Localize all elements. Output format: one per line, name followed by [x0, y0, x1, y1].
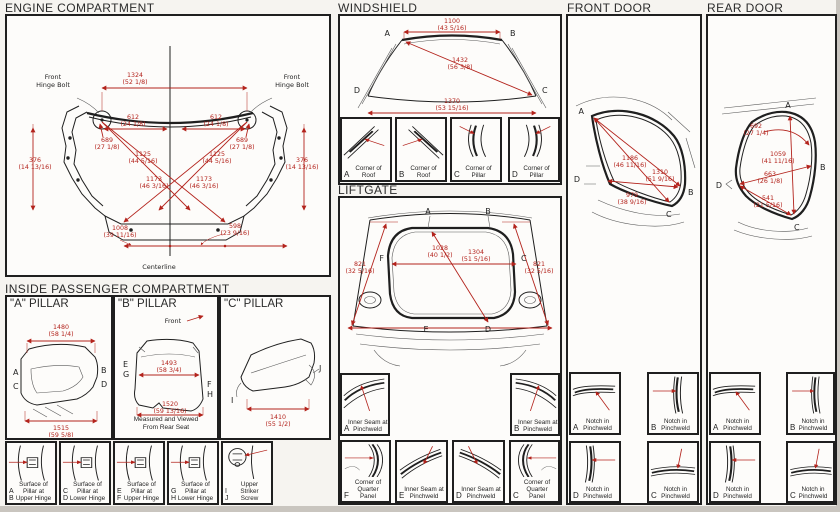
liftgate-detail-panel-d: D Inner Seam at Pinchweld [452, 440, 505, 503]
a-pillar-line-art [21, 344, 98, 417]
dim-text: 663 [764, 171, 776, 178]
dim-text: 979 [626, 192, 638, 199]
front-hinge-bolt-label: Hinge Bolt [275, 81, 309, 89]
point-label: C [542, 86, 548, 95]
body-dimensions-sheet: ENGINE COMPARTMENT WINDSHIELD FRONT DOOR… [0, 0, 840, 512]
dim-text: 1173 [146, 176, 162, 183]
front-door-detail-panel-b: B Notch in Pinchweld [647, 372, 699, 435]
panel-caption: Upper Striker Screw [229, 481, 270, 502]
point-label: D [716, 181, 722, 190]
rear-door-detail-panel-d: D Notch in Pinchweld [709, 441, 761, 503]
point-label: B [510, 29, 516, 38]
windshield-detail-panel-d: D Corner of Pillar [508, 117, 560, 182]
dim-text: 612 [127, 114, 139, 121]
b-pillar-drawing: Front E F G H 1493 (58 3/4) 1520 (59 13/… [115, 313, 217, 417]
notch-art [711, 444, 759, 484]
dim-text: 1186 [622, 155, 638, 162]
notch-art [571, 444, 619, 484]
point-label: A [425, 207, 431, 216]
dim-text: (43 5/16) [437, 25, 466, 32]
striker-screw-art [223, 444, 271, 482]
point-label: D [485, 325, 491, 334]
liftgate-detail-panel-a: A Inner Seam at Pinchweld [340, 373, 390, 436]
rear-door-detail-panel-c: C Notch in Pinchweld [786, 441, 835, 503]
dim-text: (44 5/16) [128, 158, 157, 165]
dim-text: (53 15/16) [435, 105, 468, 112]
windshield-drawing: A B C D 1100 (43 5/16) 1432 (56 3/8) 137… [340, 16, 560, 118]
a-pillar-dimension-lines [25, 341, 97, 421]
dim-text: (56 3/8) [447, 64, 472, 71]
dim-text: (32 5/16) [345, 268, 374, 275]
point-label: C [794, 223, 800, 232]
point-label: B [820, 163, 826, 172]
dim-text: (44 5/16) [202, 158, 231, 165]
rear-door-detail-panel-b: B Notch in Pinchweld [786, 372, 835, 435]
corner-of-pillar-art [452, 120, 500, 160]
interior-detail-panel-gh: G H Surface of Pillar at Lower Hinge [167, 441, 219, 505]
point-label: E [423, 325, 428, 334]
dim-text: (59 13/16) [153, 408, 186, 415]
dim-text: 1370 [444, 98, 460, 105]
a-pillar-title: "A" PILLAR [10, 298, 69, 310]
panel-caption: Notch in Pinchweld [577, 418, 618, 432]
dim-text: 1324 [127, 72, 143, 79]
front-hinge-bolt-label: Hinge Bolt [36, 81, 70, 89]
notch-art [788, 444, 833, 484]
engine-dimension-lines [33, 88, 304, 247]
panel-caption: Corner of Quarter Panel [348, 479, 388, 500]
engine-compartment-box: 1324 (52 1/8) 612 (24 1/8) 612 (24 1/8) … [5, 14, 331, 277]
windshield-detail-panel-b: B Corner of Roof [395, 117, 447, 182]
rear-door-detail-panel-a: A Notch in Pinchweld [709, 372, 761, 435]
inner-seam-art [512, 376, 558, 414]
notch-art [571, 375, 619, 415]
panel-caption: Notch in Pinchweld [655, 486, 696, 500]
dim-text: (24 1/8) [203, 121, 228, 128]
dim-text: (59 5/8) [48, 432, 73, 437]
dim-text: 1493 [161, 360, 177, 367]
panel-caption: Corner of Pillar [516, 165, 557, 179]
dim-text: (40 1/2) [427, 252, 452, 259]
liftgate-detail-panel-e: E Inner Seam at Pinchweld [395, 440, 448, 503]
dim-text: 541 [762, 195, 774, 202]
c-pillar-dimension-lines [247, 399, 309, 409]
dim-text: 1125 [135, 151, 151, 158]
c-pillar-title: "C" PILLAR [224, 298, 283, 310]
dim-text: 689 [236, 137, 248, 144]
front-hinge-bolt-label: Front [284, 73, 301, 81]
notch-art [649, 375, 697, 415]
point-label: A [385, 29, 391, 38]
a-pillar-box: "A" PILLAR A B C D 1480 (58 1/4) 1515 (5… [5, 295, 113, 440]
b-pillar-note: Measured and Viewed From Rear Seat [115, 416, 217, 432]
interior-detail-panel-cd: C D Surface of Pillar at Lower Hinge [59, 441, 111, 505]
point-label: E [123, 360, 128, 369]
inner-seam-art [455, 443, 503, 483]
dim-text: (38 9/16) [617, 199, 646, 206]
liftgate-detail-panel-b: B Inner Seam at Pinchweld [510, 373, 560, 436]
dim-text: (27 1/8) [94, 144, 119, 151]
inner-seam-art [342, 376, 388, 414]
panel-caption: Inner Seam at Pinchweld [348, 419, 387, 433]
front-hinge-bolt-label: Front [45, 73, 62, 81]
dim-text: (26 1/8) [757, 178, 782, 185]
panel-caption: Notch in Pinchweld [794, 486, 832, 500]
dim-text: 1125 [209, 151, 225, 158]
dim-text: 1173 [196, 176, 212, 183]
dim-text: (41 11/16) [761, 158, 794, 165]
b-pillar-title: "B" PILLAR [118, 298, 177, 310]
point-label: I [231, 396, 233, 405]
hinge-surface-art [7, 444, 55, 482]
liftgate-drawing: A B C D E F 821 (32 5/16) 1028 (40 1/2) … [340, 198, 560, 375]
windshield-detail-panel-c: C Corner of Pillar [450, 117, 502, 182]
corner-of-pillar-art [510, 120, 558, 160]
dim-text: (24 1/8) [120, 121, 145, 128]
liftgate-dimension-lines [348, 222, 552, 328]
dim-text: 689 [101, 137, 113, 144]
panel-point-letters: I J [225, 488, 229, 502]
point-label: B [101, 366, 107, 375]
interior-detail-panel-ef: E F Surface of Pillar at Upper Hinge [113, 441, 165, 505]
c-pillar-drawing: I J 1410 (55 1/2) [221, 313, 329, 437]
c-pillar-line-art [237, 339, 320, 397]
point-label: D [574, 175, 580, 184]
rear-door-section-title: REAR DOOR [707, 1, 783, 15]
panel-caption: Corner of Pillar [458, 165, 499, 179]
point-label: C [13, 382, 19, 391]
interior-detail-panel-ij: I J Upper Striker Screw [221, 441, 273, 505]
front-door-section-title: FRONT DOOR [567, 1, 651, 15]
point-label: C [666, 210, 672, 219]
centerline-label: Centerline [142, 263, 176, 271]
dim-text: (46 11/16) [613, 162, 646, 169]
dim-text: 821 [354, 261, 366, 268]
panel-caption: Notch in Pinchweld [717, 486, 758, 500]
dim-text: (46 3/16) [189, 183, 218, 190]
dim-text: 1520 [162, 401, 178, 408]
panel-caption: Corner of Roof [348, 165, 389, 179]
point-label: J [318, 364, 321, 373]
point-label: D [354, 86, 360, 95]
liftgate-detail-panel-f: F Corner of Quarter Panel [340, 440, 391, 503]
hinge-surface-art [115, 444, 163, 482]
panel-caption: Inner Seam at Pinchweld [403, 486, 445, 500]
interior-section-title: INSIDE PASSENGER COMPARTMENT [5, 282, 230, 296]
dim-text: (27 1/4) [743, 130, 768, 137]
point-label: G [123, 370, 129, 379]
inner-seam-art [398, 443, 446, 483]
point-label: A [13, 368, 19, 377]
panel-caption: Surface of Pillar at Upper Hinge [13, 481, 54, 502]
dim-text: (27 1/8) [229, 144, 254, 151]
rear-door-drawing: A B C D 692 (27 1/4) 1059 (41 11/16) 663… [708, 16, 835, 372]
a-pillar-drawing: A B C D 1480 (58 1/4) 1515 (59 5/8) [7, 313, 111, 437]
hinge-surface-art [169, 444, 217, 482]
notch-art [649, 444, 697, 484]
corner-of-quarter-panel-art [343, 443, 389, 477]
hinge-surface-art [61, 444, 109, 482]
dim-text: 612 [210, 114, 222, 121]
panel-caption: Surface of Pillar at Upper Hinge [121, 481, 162, 502]
panel-caption: Notch in Pinchweld [655, 418, 696, 432]
dim-text: 1310 [652, 169, 668, 176]
engine-line-art [62, 46, 287, 256]
dim-text: (21 5/16) [753, 202, 782, 209]
dim-text: 376 [29, 157, 41, 164]
point-label: F [207, 380, 212, 389]
front-direction-label: Front [165, 317, 182, 325]
point-label: H [207, 390, 213, 399]
dim-text: 1100 [444, 18, 460, 25]
dim-text: 1410 [270, 414, 286, 421]
dim-text: 1008 [112, 225, 128, 232]
windshield-detail-panel-a: A Corner of Roof [340, 117, 392, 182]
dim-text: (14 13/16) [18, 164, 51, 171]
panel-caption: Notch in Pinchweld [794, 418, 832, 432]
point-label: B [485, 207, 491, 216]
dim-text: 598 [229, 223, 241, 230]
interior-detail-panel-ab: A B Surface of Pillar at Upper Hinge [5, 441, 57, 505]
panel-caption: Corner of Quarter Panel [517, 479, 557, 500]
point-label: D [101, 380, 107, 389]
front-door-drawing: A B C D 1186 (46 11/16) 1310 (51 9/16) 9… [568, 16, 700, 372]
panel-caption: Notch in Pinchweld [577, 486, 618, 500]
dim-text: (52 1/8) [122, 79, 147, 86]
engine-compartment-drawing: 1324 (52 1/8) 612 (24 1/8) 612 (24 1/8) … [7, 16, 329, 275]
panel-caption: Inner Seam at Pinchweld [460, 486, 502, 500]
point-label: A [785, 101, 791, 110]
corner-of-roof-art [397, 120, 445, 160]
dim-text: 821 [533, 261, 545, 268]
dim-text: (58 3/4) [156, 367, 181, 374]
dim-text: (46 3/16) [139, 183, 168, 190]
panel-caption: Surface of Pillar at Lower Hinge [67, 481, 108, 502]
dim-text: (39 11/16) [103, 232, 136, 239]
panel-caption: Inner Seam at Pinchweld [518, 419, 557, 433]
dim-text: (51 5/16) [461, 256, 490, 263]
dim-text: (55 1/2) [265, 421, 290, 428]
dim-text: 1480 [53, 324, 69, 331]
front-door-detail-panel-a: A Notch in Pinchweld [569, 372, 621, 435]
dim-text: (51 9/16) [645, 176, 674, 183]
dim-text: (14 13/16) [285, 164, 318, 171]
dim-text: 1432 [452, 57, 468, 64]
dim-text: (23 9/16) [220, 230, 249, 237]
corner-of-quarter-panel-art [512, 443, 558, 477]
point-label: C [521, 254, 527, 263]
dim-text: 1028 [432, 245, 448, 252]
b-pillar-box: "B" PILLAR Front E F G H 1493 (58 3/4) 1… [113, 295, 219, 440]
windshield-section-title: WINDSHIELD [338, 1, 417, 15]
liftgate-section-title: LIFTGATE [338, 183, 398, 197]
dim-text: 1304 [468, 249, 484, 256]
point-label: B [688, 188, 694, 197]
dim-text: 1059 [770, 151, 786, 158]
point-label: F [379, 254, 384, 263]
dim-text: 692 [750, 123, 762, 130]
panel-caption: Surface of Pillar at Lower Hinge [175, 481, 216, 502]
c-pillar-box: "C" PILLAR I J 1410 (55 1/2) [219, 295, 331, 440]
point-label: A [579, 107, 585, 116]
panel-caption: Notch in Pinchweld [717, 418, 758, 432]
dim-text: 1515 [53, 425, 69, 432]
notch-art [711, 375, 759, 415]
front-door-detail-panel-c: C Notch in Pinchweld [647, 441, 699, 503]
dim-text: 376 [296, 157, 308, 164]
engine-section-title: ENGINE COMPARTMENT [5, 1, 154, 15]
front-door-detail-panel-d: D Notch in Pinchweld [569, 441, 621, 503]
notch-art [788, 375, 833, 415]
panel-caption: Corner of Roof [403, 165, 444, 179]
liftgate-detail-panel-c: C Corner of Quarter Panel [509, 440, 560, 503]
corner-of-roof-art [342, 120, 390, 160]
dim-text: (32 5/16) [524, 268, 553, 275]
dim-text: (58 1/4) [48, 331, 73, 338]
